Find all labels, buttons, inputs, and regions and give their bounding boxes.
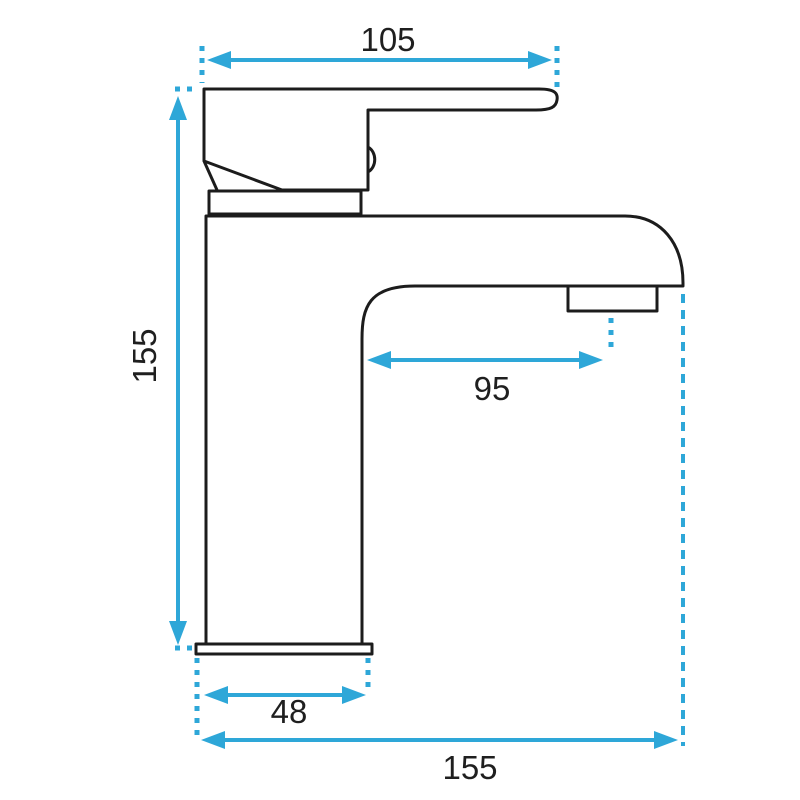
dim-base-width: 48 [197,658,368,736]
faucet-lever-handle [204,89,557,190]
dim-spout-reach-arrow-right [579,351,603,369]
dim-top-width-label: 105 [360,21,415,58]
dim-overall-depth-arrow-right [654,731,678,749]
dim-top-width-arrow-right [528,51,552,69]
faucet-aerator [568,286,657,311]
dim-height-arrow-up [169,96,187,120]
dim-height-label: 155 [126,328,163,383]
technical-drawing-svg: 105 155 95 48 [0,0,800,800]
dim-top-width: 105 [202,21,557,94]
dim-spout-reach: 95 [367,318,611,407]
faucet-base-plate [196,644,372,654]
faucet-body [206,216,683,645]
dim-overall-depth-label: 155 [442,749,497,786]
dim-spout-reach-label: 95 [474,370,511,407]
dim-base-width-arrow-left [204,686,228,704]
faucet-outline [196,89,683,654]
dim-height: 155 [126,89,197,648]
dim-base-width-label: 48 [271,693,308,730]
faucet-collar [209,191,361,214]
dim-base-width-arrow-right [342,686,366,704]
dim-height-arrow-down [169,621,187,645]
dim-overall-depth-arrow-left [201,731,225,749]
dim-top-width-arrow-left [207,51,231,69]
dim-spout-reach-arrow-left [367,351,391,369]
faucet-dimension-drawing: 105 155 95 48 [0,0,800,800]
